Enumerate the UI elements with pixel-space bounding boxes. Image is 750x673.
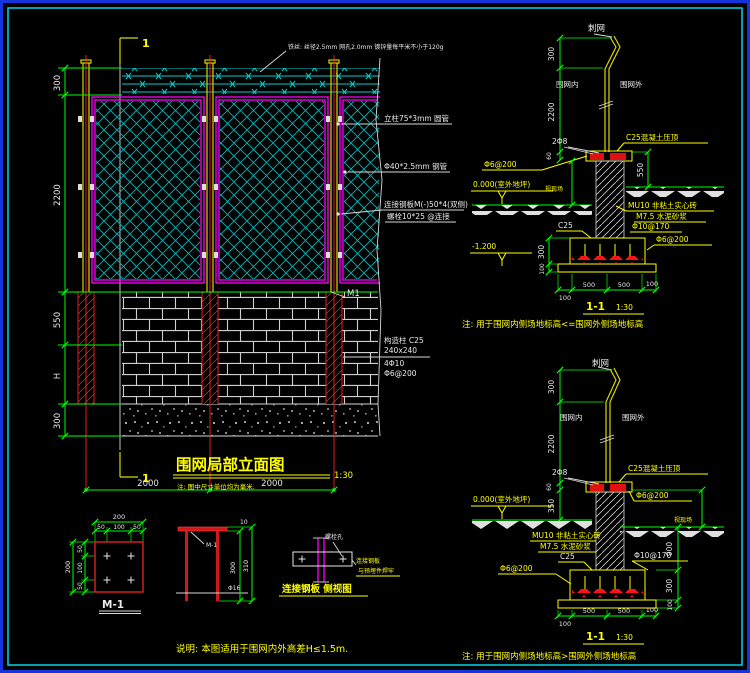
coping-stirrup-label: Φ6@200: [484, 160, 517, 169]
footing-stirrup-label: Φ6@200: [656, 235, 689, 244]
masonry-note-2: M7.5 水泥砂浆: [636, 211, 687, 221]
site-dim-label: 视现场: [674, 516, 692, 524]
section-1-1-bottom: 刺网 围网内 围网外 300 2200 60 350 2Φ8 C25混凝土压顶 …: [462, 359, 724, 662]
footing-level-label: -1.200: [472, 242, 496, 251]
dim-f100: 100: [539, 263, 546, 275]
footing-stirrup-label: Φ6@200: [500, 564, 533, 573]
dim-200-top: 200: [113, 513, 125, 521]
plate-label-2: 螺栓10*25 @连接: [387, 211, 450, 221]
section-top-title: 1-1 1:30: [583, 301, 644, 314]
section-mark-label: 1: [142, 37, 150, 50]
dim-200-left: 200: [64, 561, 72, 573]
dim-b100r: 100: [646, 606, 658, 614]
level-label: 0.000(室外地坪): [473, 494, 530, 504]
detail-post-side: M-1 Φ16 300 310 10: [176, 519, 255, 604]
footing-grade-label: C25: [558, 221, 573, 230]
section-bottom-note: 注: 用于围网内侧场地标高>围网外侧场地标高: [462, 651, 636, 662]
dim-b500a: 500: [583, 281, 595, 289]
dim-550: 550: [53, 312, 63, 328]
section-title: 1-1: [586, 631, 605, 643]
weld-label-1: 连接钢板: [356, 557, 380, 565]
bolt-holes: [104, 553, 135, 584]
dim-50a: 50: [77, 545, 84, 553]
coping-label: C25混凝土压顶: [626, 132, 679, 142]
dim-2200: 2200: [547, 434, 556, 453]
dim-60: 60: [546, 483, 553, 491]
dim-b100l: 100: [559, 294, 571, 302]
footing-grade-label: C25: [560, 552, 575, 561]
column-spec-3: 4Φ10: [384, 359, 404, 368]
section-1-1-top: 刺网 围网内 围网外 300 2200 60 2Φ8 C25混凝土压顶 Φ6@2…: [462, 24, 724, 330]
dim-2200: 2200: [547, 102, 556, 121]
detail-plate: 螺栓孔 连接钢板 与预埋件焊牢 连接钢板 侧视图: [279, 533, 400, 596]
elevation-left-dims: 300 2200 550 H 300: [53, 65, 68, 439]
masonry-note-3: Φ10@170: [632, 222, 669, 231]
ground-band: [122, 404, 378, 436]
dim-b100r: 100: [646, 280, 658, 288]
dim-310: 310: [242, 560, 250, 572]
outside-label: 围网外: [622, 412, 645, 422]
masonry-note-2: M7.5 水泥砂浆: [540, 541, 591, 551]
section-scale: 1:30: [616, 303, 633, 312]
plate-label-1: 连接钢板M(-)50*4(双侧): [384, 199, 468, 209]
section-cut-mark-bottom: 1: [120, 452, 150, 485]
hole-label: 螺栓孔: [325, 533, 343, 541]
section-bottom-title: 1-1 1:30: [583, 631, 644, 644]
dim-300: 300: [229, 562, 237, 574]
rebar-label: 2Φ8: [552, 468, 568, 477]
masonry-note-1: MU10 非粘土实心砖: [628, 200, 697, 210]
wire-note: 铁丝: 丝径2.5mm 网孔2.0mm 镀锌量每平米不小于120g: [288, 43, 444, 51]
coping-label: C25混凝土压顶: [628, 463, 681, 473]
dim-50b: 50: [77, 582, 84, 590]
base-plate: [95, 542, 143, 592]
column-spec-4: Φ6@200: [384, 369, 417, 378]
detail-m1: 200 50 100 50 200 50 100 50 M-1: [64, 513, 146, 614]
dim-300-top: 300: [53, 75, 63, 91]
dim-50a: 50: [97, 524, 105, 531]
dim-b500b: 500: [618, 281, 630, 289]
anchor-label: Φ16: [228, 585, 241, 592]
section-scale: 1:30: [616, 633, 633, 642]
frame-label: Φ40*2.5mm 钢管: [384, 161, 448, 171]
dim-b500a: 500: [583, 607, 595, 615]
level-label: 0.000(室外地坪): [473, 179, 530, 189]
inside-label: 围网内: [560, 412, 583, 422]
elevation-scale: 1:30: [334, 471, 353, 481]
detail-m1-title: M-1: [102, 599, 124, 611]
barbed-label: 刺网: [588, 24, 605, 34]
dim-f100: 100: [667, 599, 674, 611]
inside-label: 围网内: [556, 79, 579, 89]
cad-canvas: 300 2200 550 H 300 2000 2000 1 1 铁丝: 丝径2…: [0, 0, 750, 673]
footing-bar-label: Φ10@170: [634, 551, 671, 560]
column-spec-1: 构造柱 C25: [384, 335, 424, 345]
dim-100: 100: [77, 562, 84, 574]
dim-300: 300: [547, 380, 556, 395]
dim-H: H: [53, 373, 63, 379]
dim-b100l: 100: [559, 620, 571, 628]
dim-2000-b: 2000: [261, 479, 283, 489]
barbed-wire-band: [122, 68, 380, 94]
elevation-note: 注: 图中尺寸单位均为毫米.: [177, 482, 255, 491]
m1-label: M1: [347, 289, 360, 299]
section-title: 1-1: [586, 301, 605, 313]
post-leg: [185, 531, 188, 601]
dim-100: 100: [113, 524, 125, 531]
elevation-title: 围网局部立面图: [176, 455, 285, 474]
section-top-note: 注: 用于围网内侧场地标高<=围网外侧场地标高: [462, 319, 643, 330]
dim-f300: 300: [665, 579, 674, 594]
dim-50b: 50: [133, 524, 141, 531]
footer-note: 说明: 本图适用于围网内外高差H≤1.5m.: [176, 643, 348, 655]
post-label: 立柱75*3mm 圆管: [384, 113, 450, 123]
dim-2200: 2200: [53, 184, 63, 206]
column-spec-2: 240x240: [384, 346, 417, 355]
dim-b500b: 500: [618, 607, 630, 615]
plate-ref-label: M-1: [206, 542, 217, 549]
dim-300: 300: [547, 47, 556, 62]
dim-f300: 300: [537, 245, 546, 260]
site-dim-label: 视现场: [545, 185, 563, 193]
elevation-view: 300 2200 550 H 300 2000 2000 1 1 铁丝: 丝径2…: [53, 37, 468, 493]
weld-label-2: 与预埋件焊牢: [358, 567, 394, 575]
dim-10: 10: [240, 519, 248, 526]
bolt-holes: [299, 556, 347, 563]
dim-60: 60: [546, 152, 553, 160]
section-mark-label: 1: [142, 472, 150, 485]
dim-550: 550: [636, 163, 645, 178]
detail-plate-title: 连接钢板 侧视图: [282, 583, 352, 595]
rebar-label: 2Φ8: [552, 137, 568, 146]
masonry-note-1: MU10 非粘土实心砖: [532, 530, 601, 540]
top-plate: [178, 527, 227, 531]
dim-300-bottom: 300: [53, 413, 63, 429]
coping-stirrup-label: Φ6@200: [636, 491, 669, 500]
section-cut-mark-top: 1: [120, 37, 150, 64]
outside-label: 围网外: [620, 79, 643, 89]
